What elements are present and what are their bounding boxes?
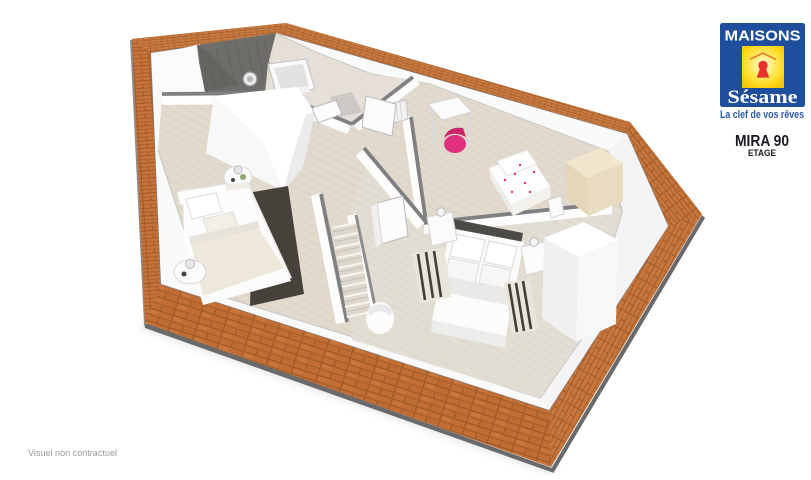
- svg-text:MAISONS: MAISONS: [725, 29, 801, 45]
- svg-text:Sésame: Sésame: [728, 87, 798, 108]
- svg-text:La clef de vos rêves: La clef de vos rêves: [720, 109, 804, 121]
- svg-text:Visuel non contractuel: Visuel non contractuel: [28, 448, 117, 459]
- svg-text:ETAGE: ETAGE: [748, 148, 776, 159]
